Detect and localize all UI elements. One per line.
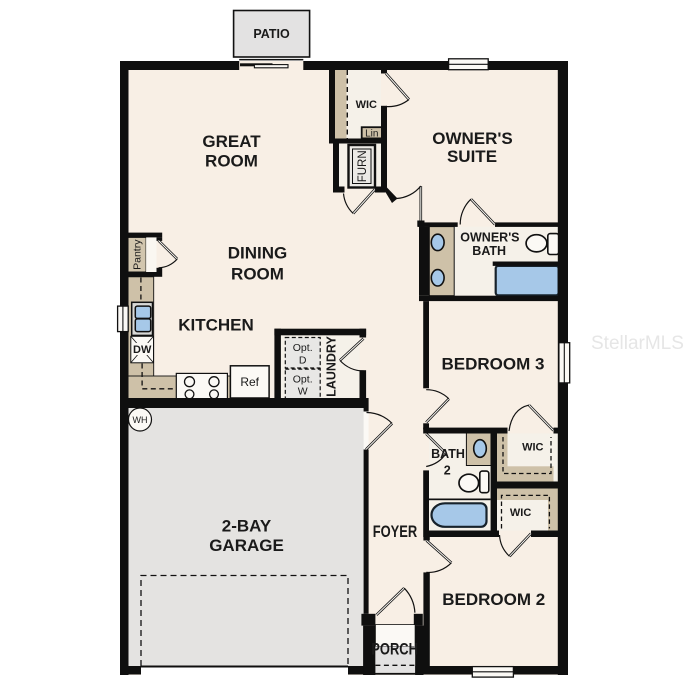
svg-text:GREAT: GREAT <box>202 132 261 151</box>
svg-text:2: 2 <box>444 464 451 478</box>
svg-text:WIC: WIC <box>522 442 543 454</box>
svg-text:BEDROOM 3: BEDROOM 3 <box>442 355 545 374</box>
svg-text:GARAGE: GARAGE <box>209 536 284 555</box>
svg-text:ROOM: ROOM <box>205 152 258 171</box>
svg-text:KITCHEN: KITCHEN <box>178 316 254 335</box>
svg-text:Pantry: Pantry <box>132 239 144 270</box>
svg-text:PATIO: PATIO <box>253 27 290 41</box>
svg-text:Opt.: Opt. <box>293 374 313 386</box>
svg-text:FURN: FURN <box>357 150 369 182</box>
svg-text:W: W <box>298 386 308 398</box>
svg-text:DINING: DINING <box>228 244 288 263</box>
svg-text:Ref: Ref <box>240 375 259 389</box>
svg-text:BATH: BATH <box>472 244 506 258</box>
svg-text:OWNER'S: OWNER'S <box>432 129 513 148</box>
svg-text:2-BAY: 2-BAY <box>222 517 272 536</box>
svg-text:ROOM: ROOM <box>231 264 284 283</box>
svg-text:D: D <box>299 355 307 367</box>
svg-text:WIC: WIC <box>510 507 531 519</box>
svg-text:SUITE: SUITE <box>447 147 497 166</box>
svg-text:WIC: WIC <box>356 99 377 111</box>
svg-text:Lin: Lin <box>365 129 378 140</box>
svg-text:FOYER: FOYER <box>373 522 418 541</box>
svg-text:BATH: BATH <box>431 447 465 461</box>
svg-text:BEDROOM 2: BEDROOM 2 <box>442 590 545 609</box>
svg-text:StellarMLS: StellarMLS <box>591 333 684 354</box>
svg-text:LAUNDRY: LAUNDRY <box>325 336 339 397</box>
svg-text:WH: WH <box>133 415 148 425</box>
svg-text:OWNER'S: OWNER'S <box>460 231 519 245</box>
svg-text:PORCH: PORCH <box>371 640 418 659</box>
svg-text:DW: DW <box>133 344 152 356</box>
svg-text:Opt.: Opt. <box>293 342 313 354</box>
